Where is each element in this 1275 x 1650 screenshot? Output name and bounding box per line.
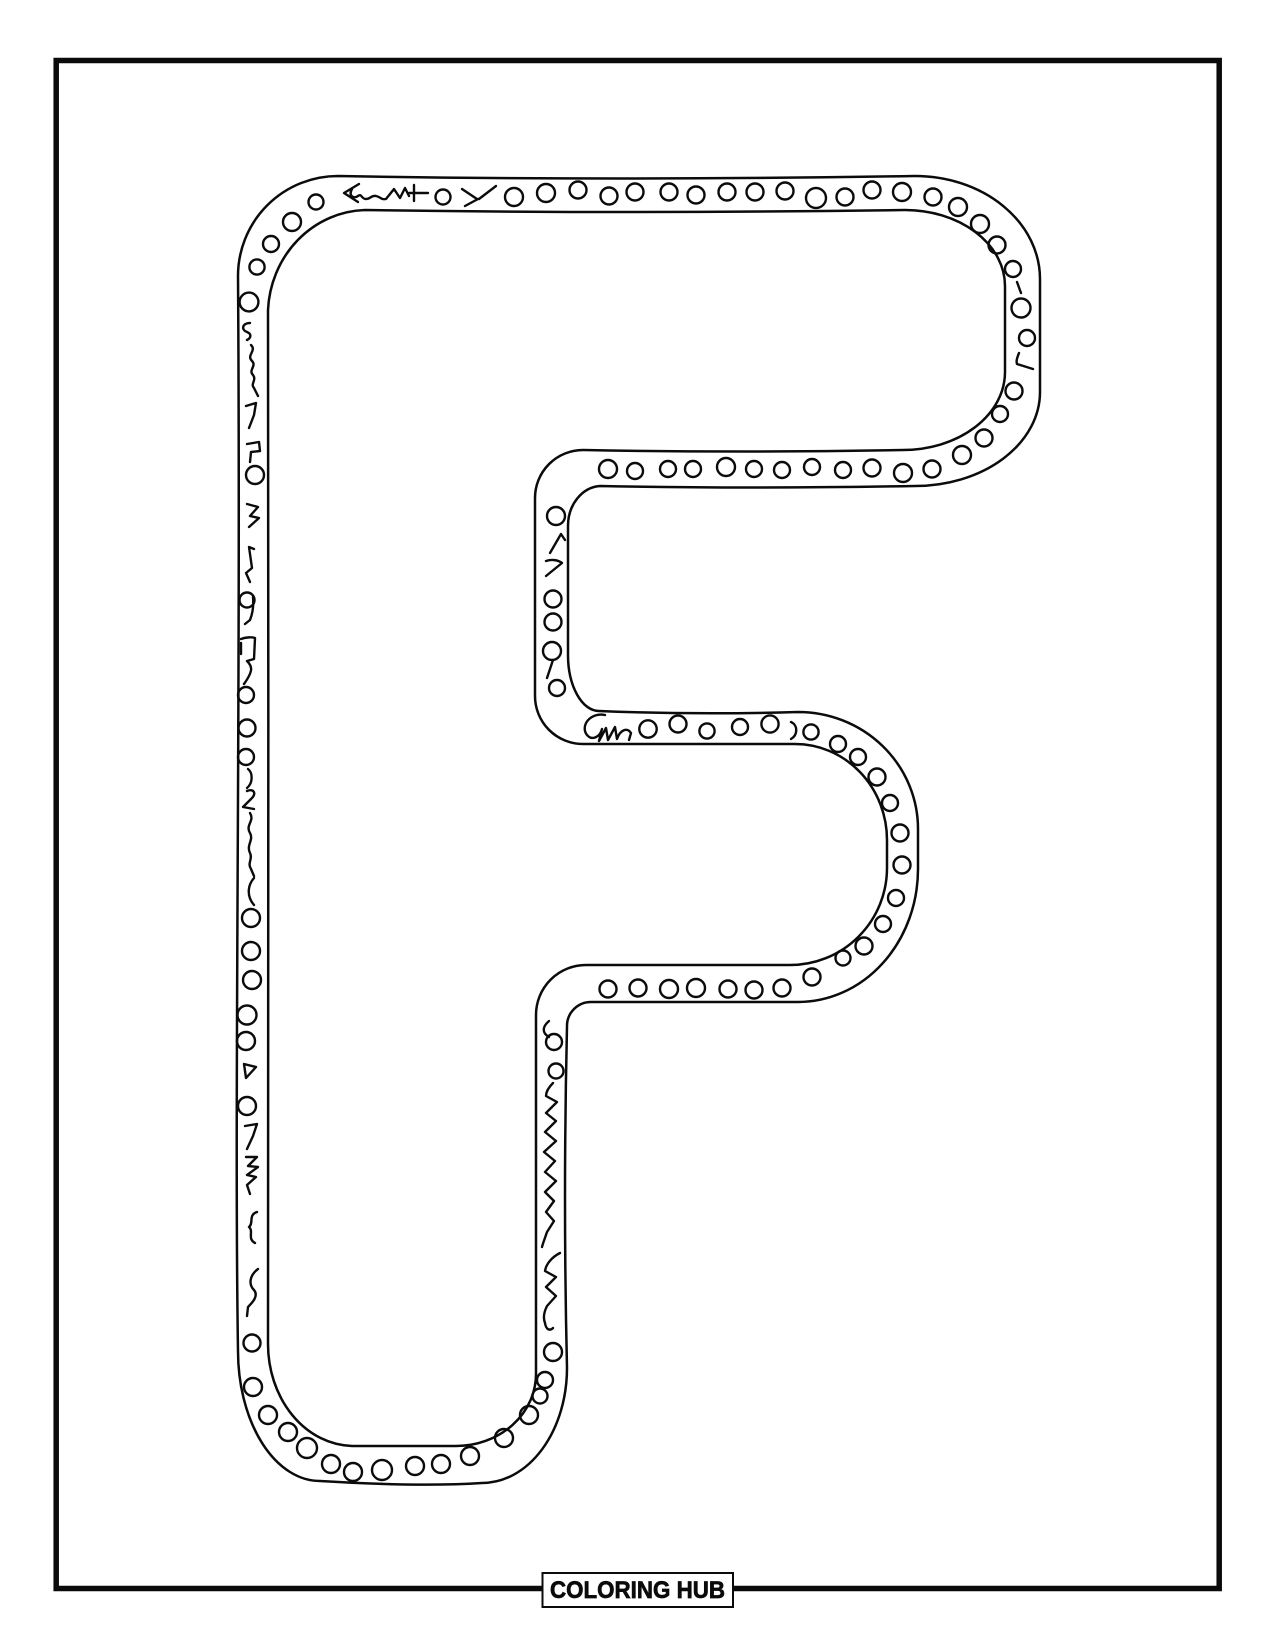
svg-text:COLORING HUB: COLORING HUB: [550, 1577, 725, 1604]
